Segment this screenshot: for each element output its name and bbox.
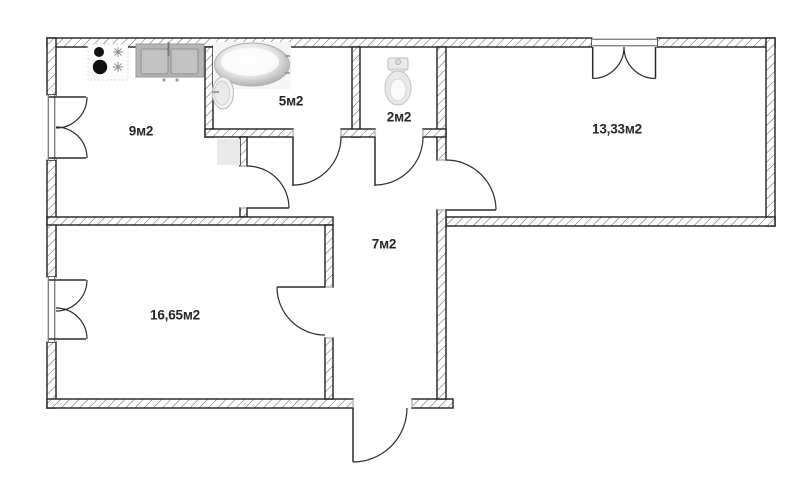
stove-icon xyxy=(88,44,128,80)
wall-room-right-bottom xyxy=(446,217,775,226)
toilet-icon xyxy=(385,58,411,105)
wall-kitchen-bathroom xyxy=(205,47,213,137)
wall-hallway-right-lower xyxy=(437,210,446,399)
wall-wet-bottom-b xyxy=(341,129,375,137)
wall-outer-bottom-left xyxy=(47,399,353,408)
wall-bathroom-toilet xyxy=(352,47,360,137)
wall-kitchen-hallway-upper xyxy=(240,137,247,166)
door-room-left xyxy=(277,287,333,338)
wall-room-left-right-lower xyxy=(325,338,333,399)
floor-plan: 9м2 5м2 2м2 13,33м2 7м2 16,65м2 xyxy=(0,0,806,502)
wall-wet-bottom-a xyxy=(205,129,293,137)
room-label-kitchen: 9м2 xyxy=(129,124,153,139)
door-bathroom xyxy=(293,130,341,187)
walls xyxy=(47,38,775,408)
window-room-left xyxy=(47,277,87,342)
balcony-door xyxy=(592,38,657,79)
wall-outer-bottom-right xyxy=(412,399,453,408)
wall-outer-right xyxy=(766,38,775,226)
wall-hallway-right-upper xyxy=(437,47,446,160)
door-toilet xyxy=(375,130,423,187)
wall-outer-top-left xyxy=(47,38,592,47)
door-entrance xyxy=(353,400,412,463)
floor-plan-drawing xyxy=(0,0,806,502)
sink-icon xyxy=(136,42,204,82)
window-kitchen xyxy=(47,95,87,160)
room-label-toilet: 2м2 xyxy=(387,110,411,125)
room-label-hallway: 7м2 xyxy=(372,237,396,252)
wall-outer-left-lower xyxy=(47,342,56,408)
washbasin-icon xyxy=(212,77,234,109)
room-label-room-right: 13,33м2 xyxy=(592,122,642,137)
wall-room-left-right-upper xyxy=(325,225,333,287)
appliance-block xyxy=(217,139,240,165)
wall-outer-top-right xyxy=(657,38,775,47)
room-label-bathroom: 5м2 xyxy=(279,94,303,109)
wall-kitchen-hallway-lower xyxy=(240,208,247,217)
wall-outer-left-upper xyxy=(47,38,56,95)
door-kitchen xyxy=(241,166,290,208)
room-label-room-left: 16,65м2 xyxy=(150,308,200,323)
wall-kitchen-bottom xyxy=(47,217,333,225)
door-room-right xyxy=(438,160,497,210)
wall-wet-bottom-c xyxy=(423,129,446,137)
